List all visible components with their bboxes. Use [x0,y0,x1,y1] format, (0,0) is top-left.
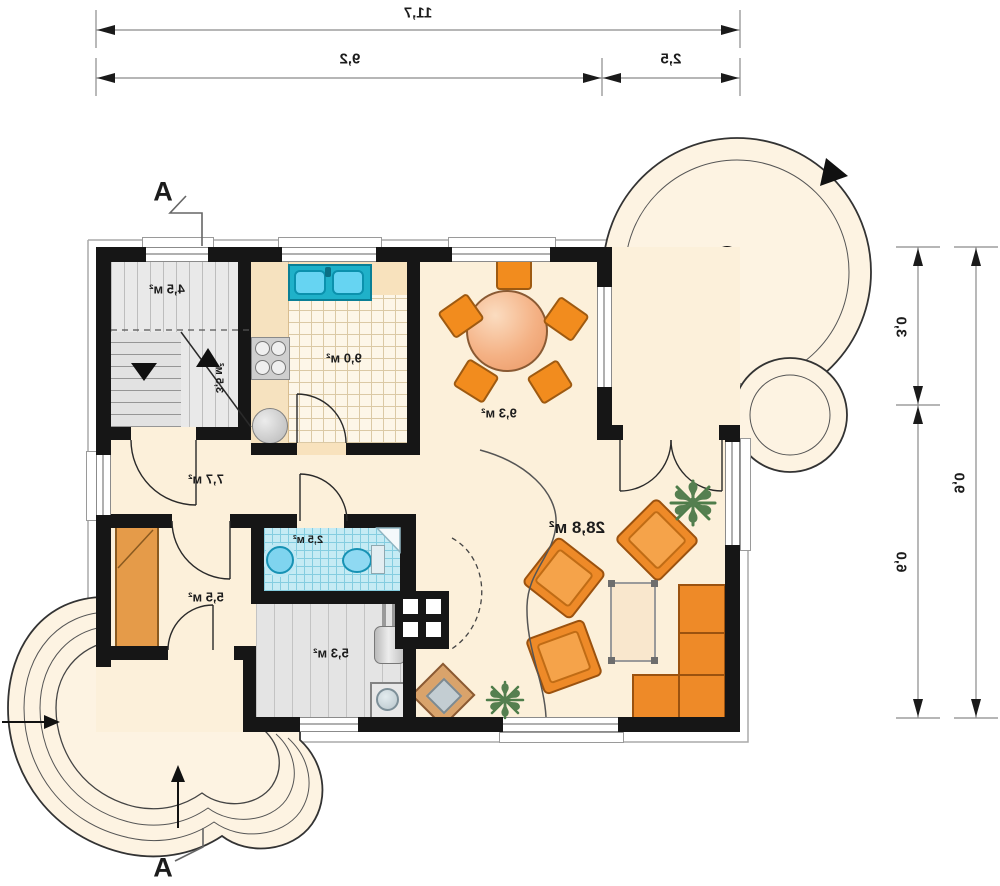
sink-basin [332,270,364,295]
table-post [608,580,615,587]
wall [597,247,612,287]
window [503,717,618,732]
coffee-table [610,582,656,662]
wall [618,717,740,732]
burner-icon [255,341,270,356]
wall [597,425,623,440]
room-label-living: 28,8 м² [549,518,605,538]
fireplace-chimney [395,591,449,649]
washing-machine [370,682,407,719]
wall [96,514,172,528]
stairs-treads [111,332,181,427]
section-marker-bottom: A [153,853,173,884]
window [452,247,550,262]
room-label-wardrobe-room: 5,5 м² [188,590,224,605]
burner-icon [255,360,270,375]
toilet-tank [371,545,385,574]
kitchen-tiles [287,295,407,443]
chimney-flue [403,622,418,637]
entry-arrow-icon [44,715,60,729]
chimney-flue [403,599,418,614]
window-sill [499,732,624,743]
chimney-flue [426,599,441,614]
wall [251,717,300,732]
room-label-hall: 7,7 м² [188,472,224,487]
dim-top-total: 11,7 [404,5,432,22]
chimney-flue [426,622,441,637]
dim-right-total: 9,0 [951,473,968,494]
stove [251,337,290,380]
wall [407,262,420,443]
corner-sofa-horizontal [632,674,726,722]
wall [597,387,612,427]
window [282,247,376,262]
burner-icon [271,360,286,375]
wardrobe [115,526,159,652]
wall [358,717,503,732]
boiler-pipe [382,604,386,626]
dim-top-terrace: 2,5 [661,51,682,68]
sofa-seam [680,632,724,634]
window [300,717,358,732]
floor-plan: ✻ ✻ 4,5 м² 3,5 м² 9,0 м² 9,3 м² 7,7 м² 2… [0,0,1000,886]
section-marker-top: A [153,177,173,208]
wall [251,591,416,604]
dining-chair [496,258,532,290]
entry-arrow-icon [171,765,185,782]
window-sill [740,438,751,551]
toilet-bowl [342,548,372,573]
wall [725,425,740,442]
table-post [651,580,658,587]
wall [243,646,256,732]
room-label-bathroom: 2,5 м² [293,534,323,546]
room-label-dining: 9,3 м² [481,406,517,421]
wall [238,262,251,440]
wall [96,646,168,660]
wall [725,545,740,732]
room-label-utility: 5,3 м² [313,646,349,661]
terrace-arrow-icon [820,158,848,186]
room-label-staircase: 4,5 м² [149,282,185,297]
sink-basin [294,270,326,295]
dining-table [466,290,548,372]
bathroom-sink [266,546,294,574]
room-label-kitchen: 9,0 м² [326,351,362,366]
wall [346,443,420,455]
window [725,442,740,545]
table-post [608,657,615,664]
sofa-seam [678,676,680,720]
wall [251,443,297,455]
window [597,287,612,387]
table-post [651,657,658,664]
window [146,247,208,262]
dim-right-lower: 6,0 [893,552,910,573]
kitchen-sink [288,264,372,301]
room-label-stairs: 3,5 м² [213,363,225,393]
faucet-icon [325,267,331,277]
window [96,455,111,515]
fridge [252,408,288,444]
dim-right-upper: 3,0 [893,317,910,338]
burner-icon [271,341,286,356]
dim-top-main: 9,2 [340,51,361,68]
wall [111,427,131,440]
